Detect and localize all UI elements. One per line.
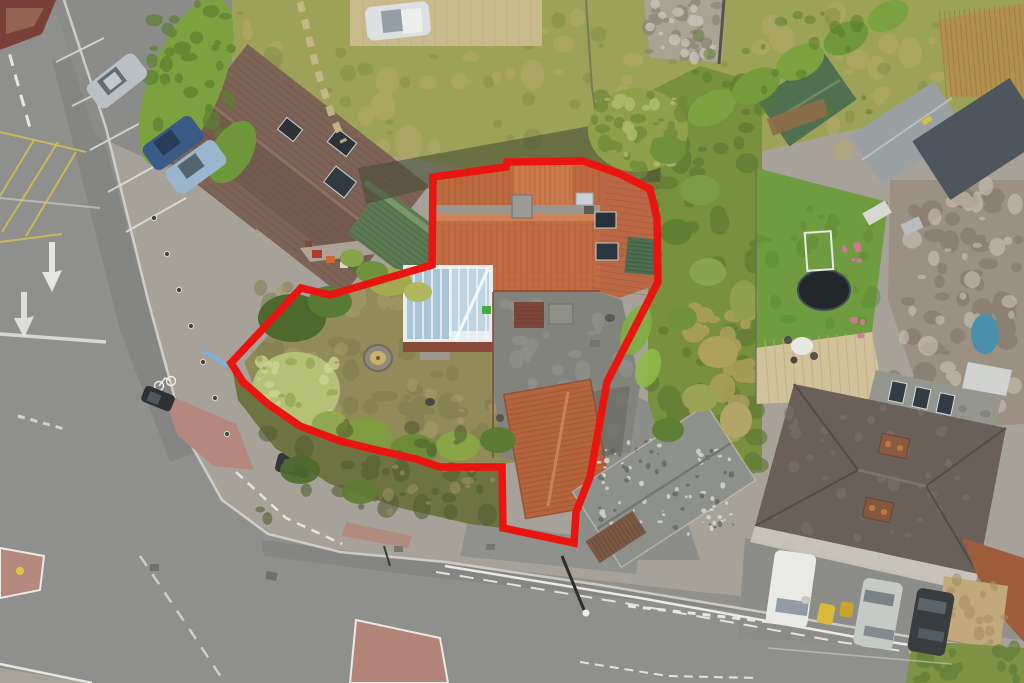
br-chimney-pot-4 — [881, 509, 887, 515]
patio-pot — [605, 314, 615, 322]
green-mat — [482, 306, 491, 314]
garden-plant-2 — [340, 249, 364, 267]
bollard-1 — [151, 215, 156, 220]
yard-blue-pool — [971, 314, 999, 354]
house-skylight-2 — [596, 243, 618, 260]
aerial-photo-stage — [0, 0, 1024, 683]
garden-item-1 — [425, 398, 435, 406]
conservatory-brick-wall — [403, 342, 495, 352]
left-house-clutter-1 — [312, 250, 322, 258]
patio-gray-box — [549, 304, 573, 324]
car-white-top-roof — [401, 8, 423, 34]
garden-bush-gold-2 — [404, 282, 432, 302]
verge-bush-2 — [342, 480, 378, 504]
garden-item-2 — [496, 414, 504, 422]
house-roof-vent — [584, 206, 594, 214]
garden-table — [791, 337, 813, 355]
strip-bush-4 — [690, 258, 726, 286]
manhole-4 — [486, 544, 495, 550]
strip-bush-6 — [682, 384, 718, 412]
strip-bush-8 — [720, 402, 752, 438]
aerial-photograph — [0, 0, 1024, 683]
manhole-2 — [150, 564, 159, 571]
yellow-bollard — [16, 567, 24, 575]
yellow-grit-bin-2 — [839, 601, 854, 618]
house-roof-panel — [576, 193, 593, 205]
bollard-7 — [224, 431, 229, 436]
gray-item-drive — [801, 596, 811, 604]
br-chimney-pot-2 — [897, 445, 903, 451]
strip-grass-clump — [698, 336, 738, 368]
strip-bush-9 — [730, 280, 758, 320]
garden-bush-4 — [480, 427, 516, 453]
verge-bush-1 — [280, 456, 320, 484]
garden-chair-1 — [784, 336, 792, 344]
strip-bush-7 — [652, 418, 684, 442]
lamp-head — [583, 610, 590, 617]
bollard-2 — [164, 251, 169, 256]
strip-bush-2 — [680, 175, 720, 205]
bollard-5 — [200, 359, 205, 364]
strip-bush-1 — [650, 136, 686, 164]
strip-bush-5 — [667, 306, 697, 330]
house-chimney — [512, 195, 532, 218]
br-chimney-pot-3 — [869, 505, 875, 511]
garden-chair-3 — [791, 357, 798, 364]
br-chimney-pot-1 — [885, 441, 891, 447]
left-house-clutter-4 — [305, 241, 312, 247]
strip-bush-3 — [660, 219, 692, 245]
car-white-top-glass — [381, 9, 403, 33]
manhole-3 — [394, 546, 403, 552]
fire-pit-dot — [376, 356, 380, 360]
bollard-4 — [188, 323, 193, 328]
conservatory-step — [420, 352, 450, 360]
patio-item — [590, 340, 600, 347]
garden-chair-2 — [810, 352, 818, 360]
left-house-clutter-2 — [326, 256, 335, 263]
bollard-3 — [176, 287, 181, 292]
bollard-6 — [212, 395, 217, 400]
house-skylight-1 — [595, 212, 616, 228]
